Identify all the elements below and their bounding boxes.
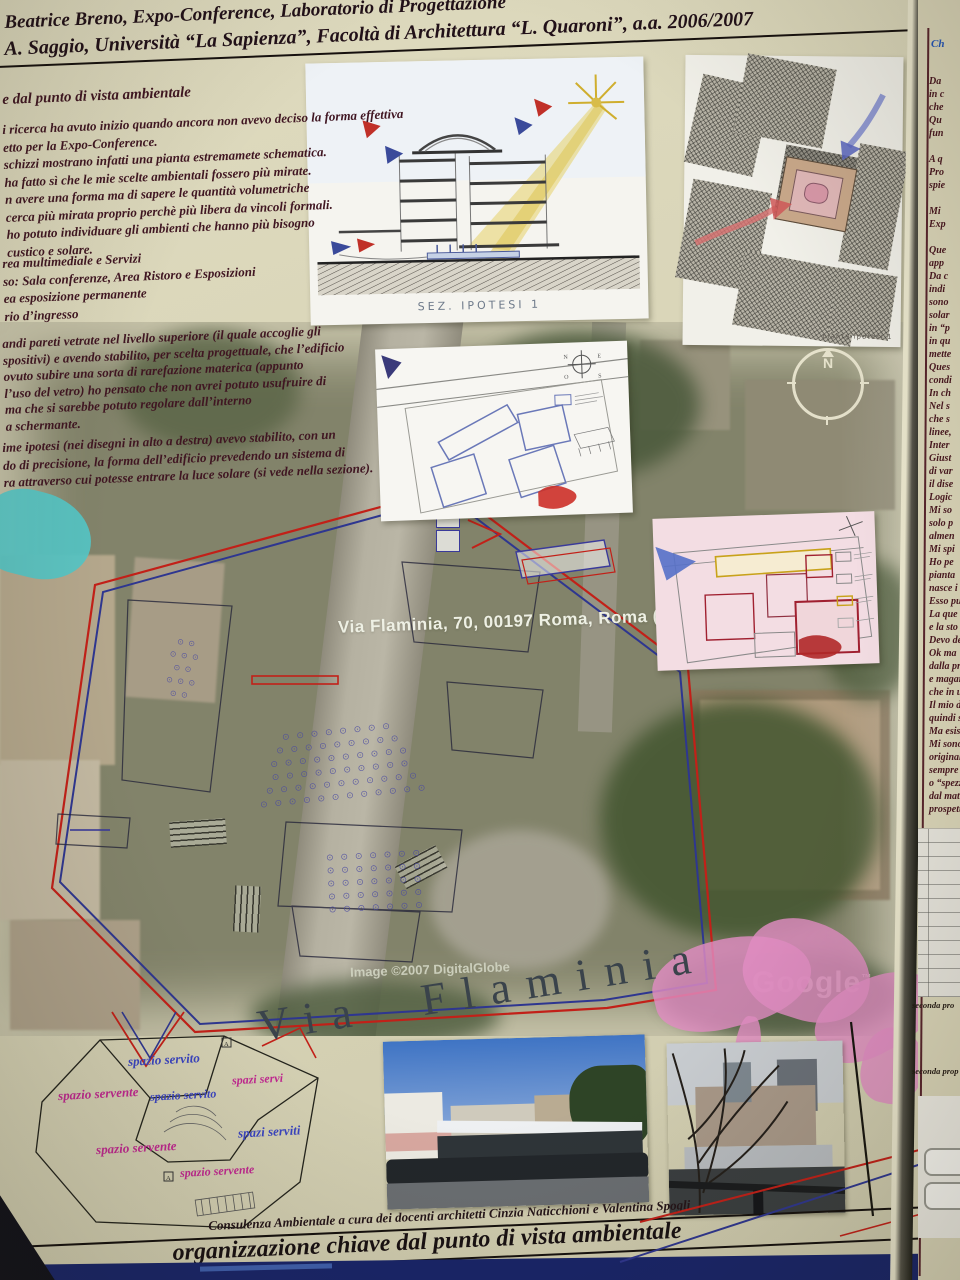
text-fragment: Mi spi xyxy=(929,544,960,557)
plan-label-servito: spazio servito xyxy=(128,1050,201,1070)
text-fragment: linee, xyxy=(929,427,960,440)
plan-sketch-arrows xyxy=(682,55,903,347)
text-fragment: quindi su xyxy=(929,713,960,726)
text-fragment: nasce i xyxy=(929,583,960,596)
text-fragment: e magar xyxy=(929,674,960,687)
pink-plan-drawing xyxy=(652,511,879,671)
text-fragment: A q xyxy=(929,154,960,167)
plan-sketch-caption: pianta ipotesi 1 xyxy=(822,332,892,341)
map-building xyxy=(0,555,115,765)
schematic-sketch-drawing: N E S O xyxy=(375,341,633,522)
compass-letter-s: S xyxy=(598,374,602,380)
right-panel-border xyxy=(919,28,930,1276)
section-marker-letter: A xyxy=(224,1041,229,1048)
text-fragment: Qu xyxy=(929,115,960,128)
right-panel-text-column: Dain ccheQufunA qProspieMiExpQueappDa ci… xyxy=(929,76,960,817)
text-fragment: Pro xyxy=(929,167,960,180)
compass-n-label: N xyxy=(823,355,833,371)
text-fragment: dal matri xyxy=(929,791,960,804)
sketch-compass xyxy=(838,516,863,537)
text-fragment: app xyxy=(929,258,960,271)
text-fragment: sono xyxy=(929,297,960,310)
text-fragment: che xyxy=(929,102,960,115)
left-paragraph-1: i ricerca ha avuto inizio quando ancora … xyxy=(2,106,409,262)
poster-photo: Beatrice Breno, Expo-Conference, Laborat… xyxy=(0,0,960,1280)
text-fragment: Esso pu xyxy=(929,596,960,609)
text-fragment: Giust xyxy=(929,453,960,466)
sketch-compass xyxy=(567,350,596,379)
stairs-hatch xyxy=(169,818,227,848)
text-fragment xyxy=(929,141,960,154)
plan-label-servente-bottom: spazio servente xyxy=(180,1162,255,1181)
plan-label-serviti-right: spazi serviti xyxy=(238,1122,301,1141)
pink-plan-sketch-panel xyxy=(652,511,879,671)
right-poster-panel: Ch Dain ccheQufunA qProspieMiExpQueappDa… xyxy=(918,0,960,1280)
right-panel-caption-2: seconda prop xyxy=(912,1066,959,1076)
auditorium-seats-left: ⊙ ⊙⊙ ⊙ ⊙⊙ ⊙⊙ ⊙ ⊙⊙ ⊙ xyxy=(134,630,232,707)
compass-tick xyxy=(860,382,869,384)
text-fragment: spie xyxy=(929,180,960,193)
text-fragment: Que xyxy=(929,245,960,258)
text-fragment: fun xyxy=(929,128,960,141)
schematic-sketch-panel: N E S O xyxy=(375,341,633,522)
text-fragment: Da c xyxy=(929,271,960,284)
compass-letter-e: E xyxy=(597,354,601,360)
text-fragment: o “spezze xyxy=(929,778,960,791)
text-fragment: dalla pr xyxy=(929,661,960,674)
left-program-list: rea multimediale e Serviziso: Sala confe… xyxy=(2,246,257,326)
text-fragment: Ques xyxy=(929,362,960,375)
text-fragment: in c xyxy=(929,89,960,102)
right-panel-elevation-sketch xyxy=(918,828,960,997)
text-fragment: mette xyxy=(929,349,960,362)
canopy-sketch xyxy=(574,427,615,456)
map-building xyxy=(10,920,140,1030)
north-compass-icon: N xyxy=(792,348,864,420)
text-fragment: Mi sono xyxy=(929,739,960,752)
text-fragment: Logic xyxy=(929,492,960,505)
compass-letter-n: N xyxy=(563,355,568,361)
text-fragment: Nel s xyxy=(929,401,960,414)
plan-label-servente-left: spazio servente xyxy=(58,1084,139,1104)
text-fragment xyxy=(929,232,960,245)
text-fragment: Devo de xyxy=(929,635,960,648)
text-fragment: il dise xyxy=(929,479,960,492)
text-fragment: che s xyxy=(929,414,960,427)
text-fragment: pianta xyxy=(929,570,960,583)
text-fragment: Inter xyxy=(929,440,960,453)
text-fragment: in qu xyxy=(929,336,960,349)
text-fragment xyxy=(929,193,960,206)
text-fragment: Exp xyxy=(929,219,960,232)
text-fragment: originale xyxy=(929,752,960,765)
red-splash xyxy=(538,485,577,509)
left-paragraph-2: andi pareti vetrate nel livello superior… xyxy=(2,322,347,435)
section-marker-letter: A xyxy=(166,1175,171,1182)
street-photo xyxy=(383,1034,650,1209)
text-fragment: solo p xyxy=(929,518,960,531)
compass-letter-o: O xyxy=(564,375,569,381)
main-poster: Beatrice Breno, Expo-Conference, Laborat… xyxy=(0,0,912,1280)
rounded-rect-sketch xyxy=(924,1182,960,1210)
text-fragment: e la sto xyxy=(929,622,960,635)
text-fragment: sempre u xyxy=(929,765,960,778)
text-fragment: in “p xyxy=(929,323,960,336)
text-fragment: Mi so xyxy=(929,505,960,518)
photo-branches xyxy=(667,1040,846,1215)
winter-view-photo xyxy=(667,1040,846,1215)
plan-label-servente-bottom-left: spazio servente xyxy=(96,1138,177,1158)
text-fragment: Ho pe xyxy=(929,557,960,570)
right-panel-caption-1: seconda pro xyxy=(912,1000,954,1010)
map-trees xyxy=(600,700,880,940)
rounded-rect-sketch xyxy=(924,1148,960,1176)
plan-label-servito-center: spazio servito xyxy=(150,1086,217,1104)
compass-tick xyxy=(826,416,828,425)
plan-label-serviti-top: spazi servi xyxy=(232,1071,284,1089)
text-fragment: indi xyxy=(929,284,960,297)
compass-tick xyxy=(787,382,796,384)
text-fragment: che in u xyxy=(929,687,960,700)
text-fragment: almen xyxy=(929,531,960,544)
text-fragment: condi xyxy=(929,375,960,388)
text-fragment: Da xyxy=(929,76,960,89)
text-fragment: Ma esiste xyxy=(929,726,960,739)
blue-arrow-icon xyxy=(381,355,402,380)
text-fragment: di var xyxy=(929,466,960,479)
auditorium-seats-block: ⊙ ⊙ ⊙ ⊙ ⊙ ⊙ ⊙⊙ ⊙ ⊙ ⊙ ⊙ ⊙ ⊙⊙ ⊙ ⊙ ⊙ ⊙ ⊙ ⊙⊙… xyxy=(296,846,454,919)
right-panel-heading: Ch xyxy=(931,38,944,50)
left-heading: e dal punto di vista ambientale xyxy=(2,84,191,109)
text-fragment: prospetto xyxy=(929,804,960,817)
text-fragment: Ok ma xyxy=(929,648,960,661)
stairs-hatch xyxy=(233,885,261,932)
plan-room-box xyxy=(436,530,460,552)
right-panel-white-sketch xyxy=(918,1096,960,1238)
text-fragment: Mi xyxy=(929,206,960,219)
text-fragment: solar xyxy=(929,310,960,323)
plan-sketch-panel: pianta ipotesi 1 xyxy=(682,55,903,347)
text-fragment: La que xyxy=(929,609,960,622)
text-fragment: Il mio di xyxy=(929,700,960,713)
text-fragment: In ch xyxy=(929,388,960,401)
map-building xyxy=(0,760,100,920)
